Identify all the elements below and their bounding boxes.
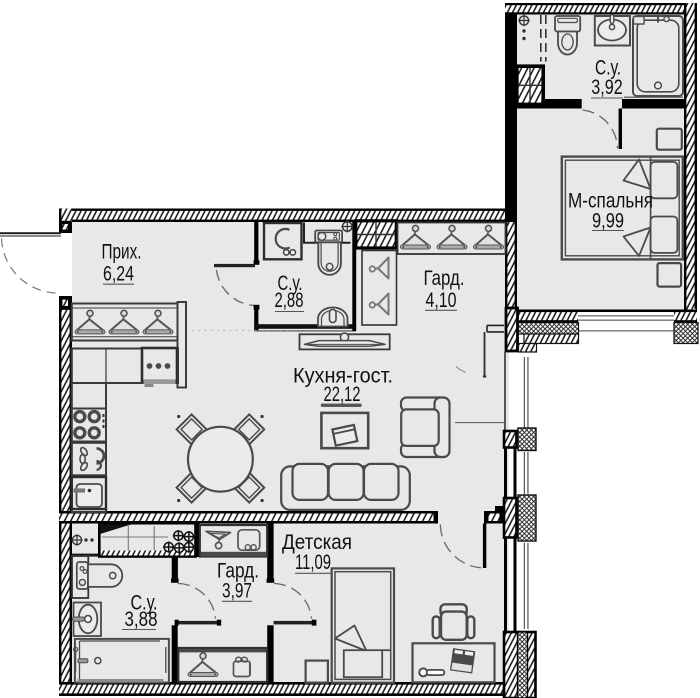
- svg-text:3,97: 3,97: [222, 580, 252, 603]
- svg-text:22,12: 22,12: [324, 383, 361, 406]
- svg-text:6,24: 6,24: [103, 263, 134, 286]
- svg-text:Гард.: Гард.: [424, 267, 465, 290]
- svg-text:3,88: 3,88: [125, 608, 158, 631]
- svg-text:2,88: 2,88: [275, 289, 304, 312]
- svg-text:4,10: 4,10: [426, 289, 457, 312]
- svg-text:3,92: 3,92: [591, 76, 623, 99]
- svg-text:11,09: 11,09: [295, 551, 331, 574]
- svg-text:Прих.: Прих.: [102, 241, 142, 264]
- svg-text:9,99: 9,99: [592, 210, 624, 233]
